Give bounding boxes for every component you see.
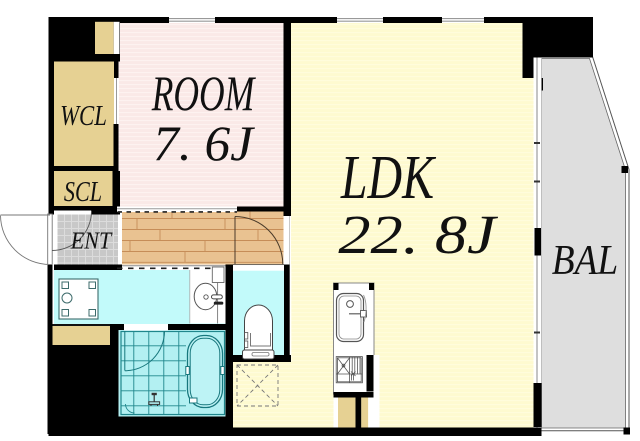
svg-text:WCL: WCL [60,99,107,131]
svg-text:ROOM: ROOM [151,66,257,121]
svg-text:SCL: SCL [64,178,102,208]
svg-text:LDK: LDK [340,143,436,213]
svg-text:ENT: ENT [70,227,114,254]
svg-text:7. 6J: 7. 6J [153,116,256,171]
svg-text:BAL: BAL [552,237,618,283]
svg-text:22. 8J: 22. 8J [338,204,498,265]
